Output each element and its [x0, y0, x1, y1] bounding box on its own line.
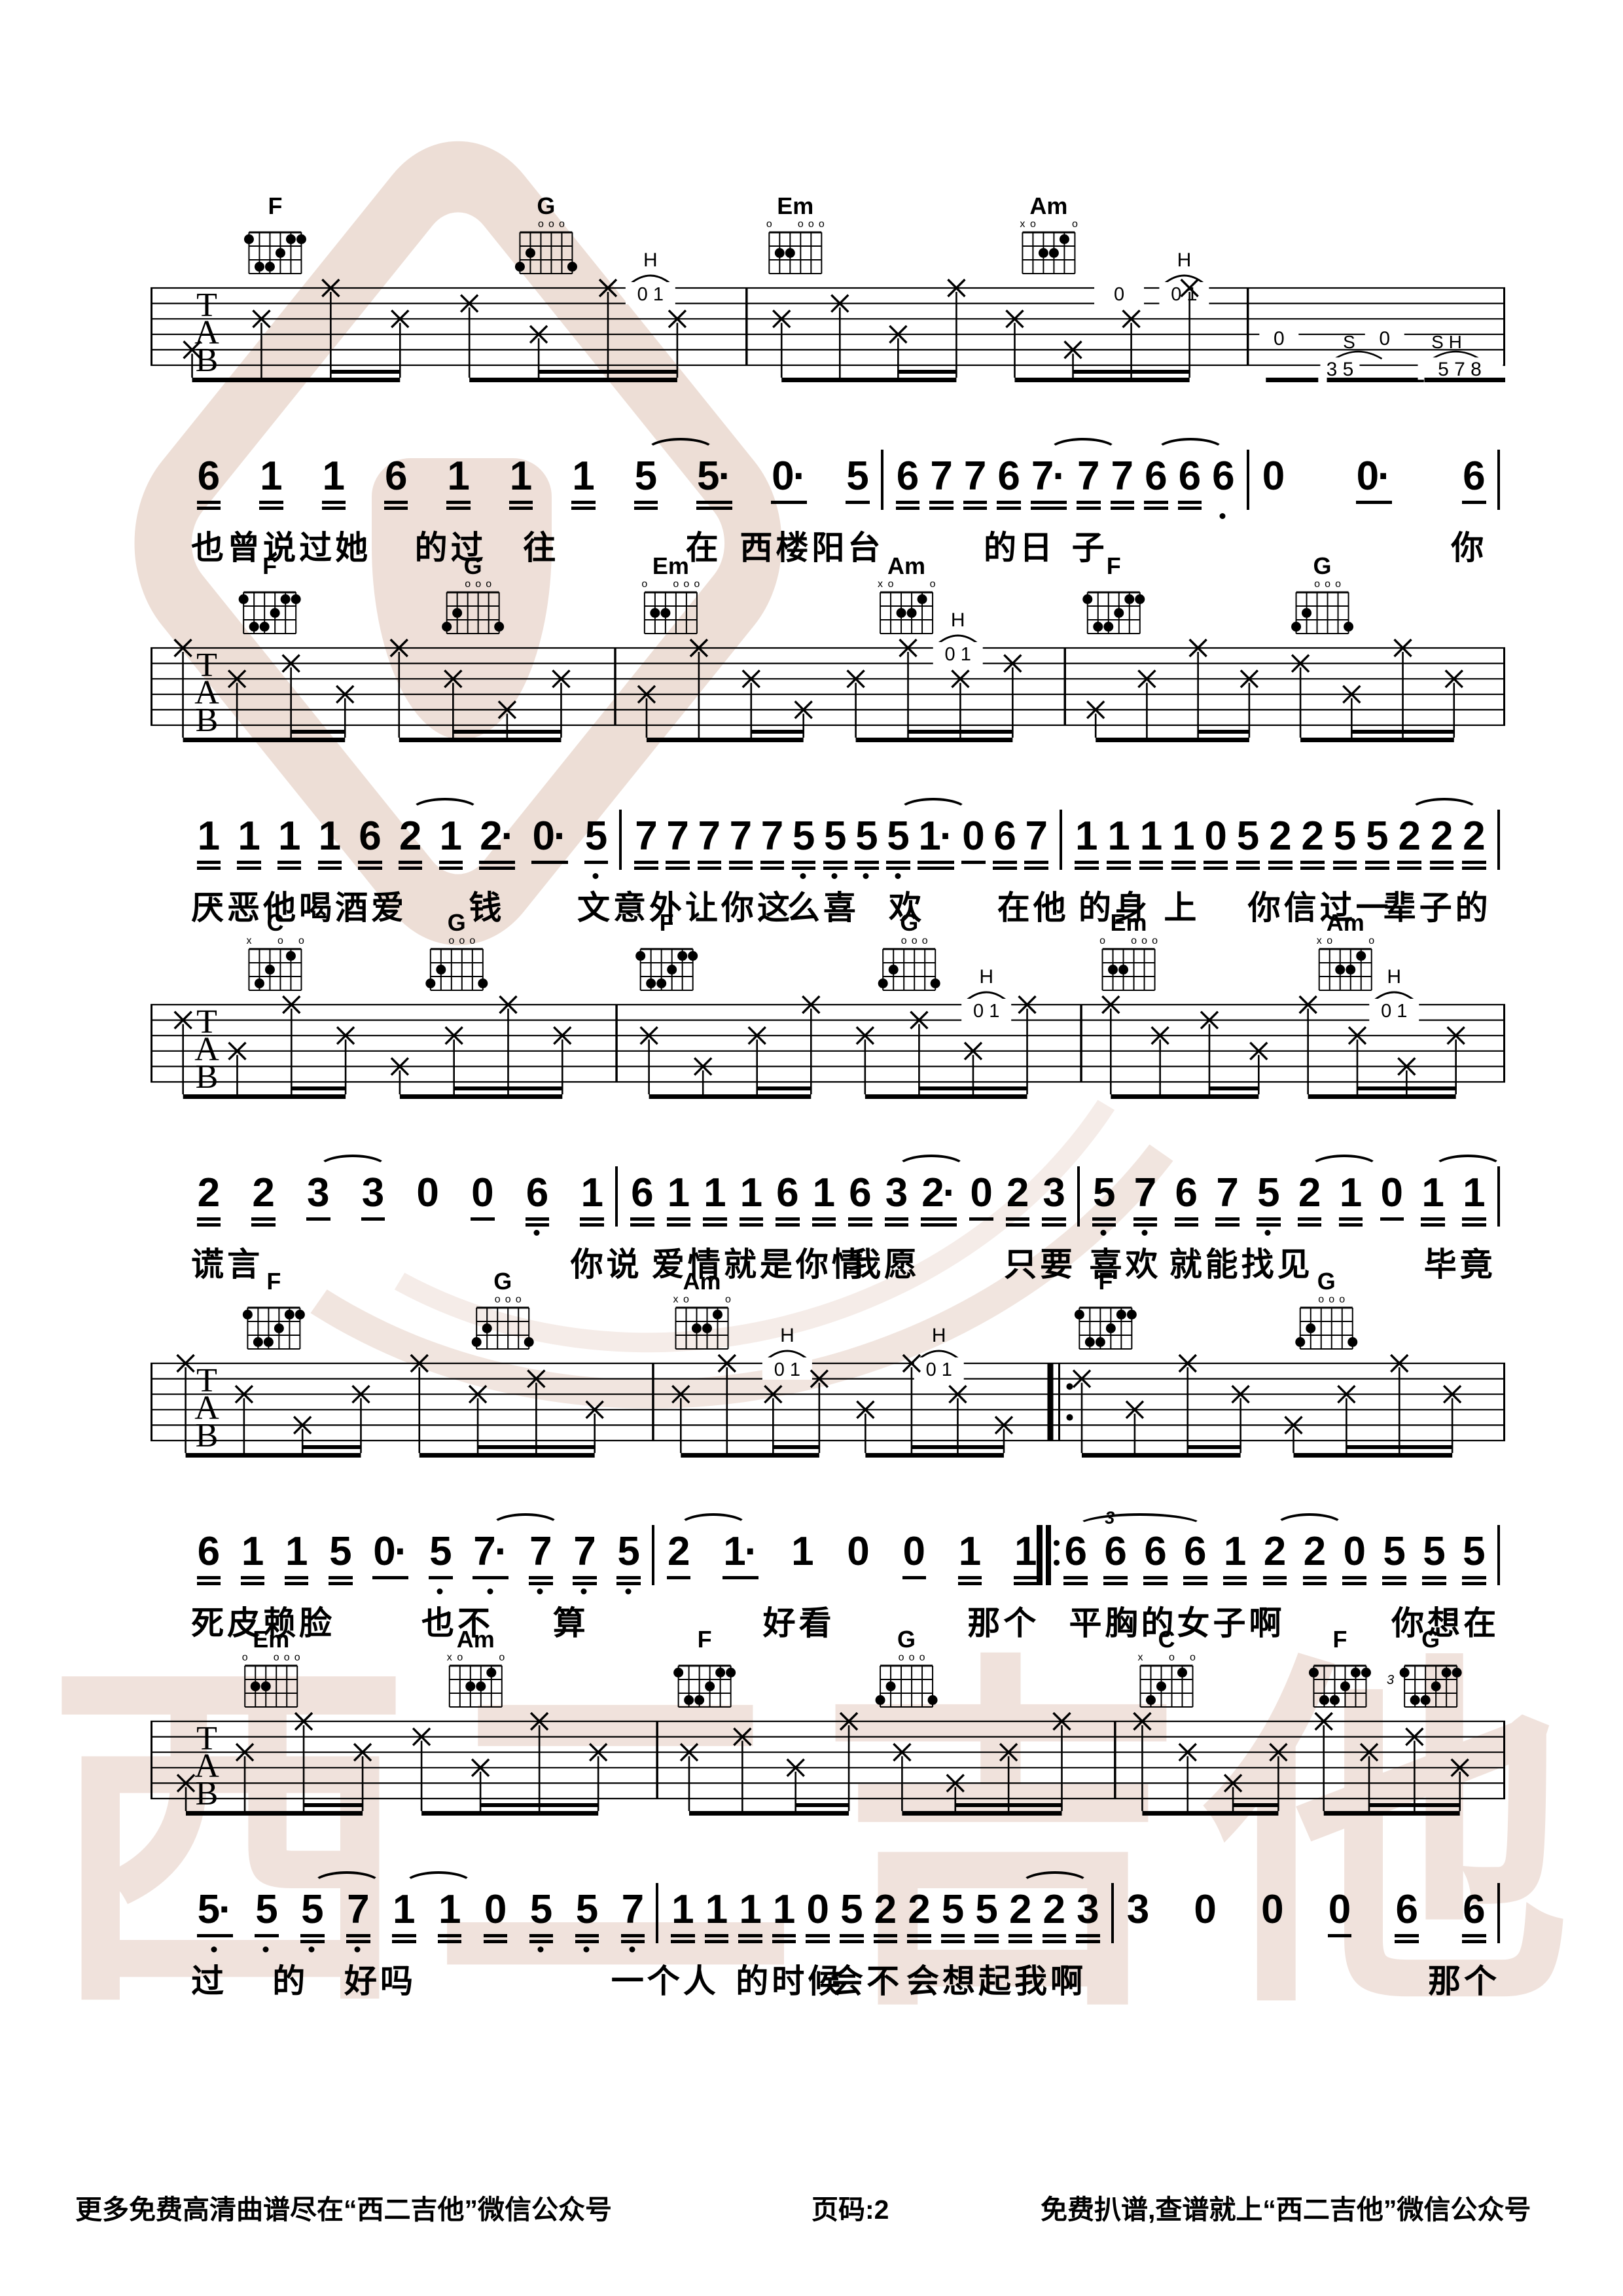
jianpu-note: 1 — [1014, 1530, 1035, 1573]
lyrics-text: 过 — [191, 1955, 227, 2002]
svg-text:o: o — [505, 1294, 511, 1305]
melody-measure: 300066 — [1127, 1888, 1484, 1931]
tab-staff: TABFGoooEmooooAmxooH0 10H0 10S3 50S H5 7… — [151, 147, 1505, 422]
melody-measure: 22330061 — [198, 1172, 602, 1215]
melody-measure: 611161632·023 — [631, 1172, 1064, 1215]
low-octave-dot — [629, 1946, 635, 1952]
jianpu-note: 5· — [697, 455, 730, 498]
svg-text:o: o — [888, 579, 894, 590]
footer-right-text: 免费扒谱,查谱就上“西二吉他”微信公众号 — [1041, 2187, 1531, 2227]
lyrics-text: 会想起我啊 — [906, 1955, 1086, 2002]
jianpu-note: 7 — [1025, 815, 1046, 858]
jianpu-note: 1 — [260, 455, 281, 498]
jianpu-note: 2 — [1463, 815, 1484, 858]
jianpu-note: 7 — [347, 1888, 368, 1931]
melody-measure: 11116212·0·5 — [198, 815, 607, 858]
jianpu-note: 0 — [970, 1172, 991, 1215]
jianpu-note: 1 — [1421, 1172, 1442, 1215]
svg-text:o: o — [277, 935, 283, 946]
melody-measure: 636661220555 — [1064, 1530, 1484, 1573]
jianpu-note: 1 — [580, 1172, 601, 1215]
svg-text:o: o — [457, 1652, 463, 1663]
svg-text:B: B — [196, 1058, 219, 1096]
melody-barline — [1497, 450, 1500, 510]
jianpu-note: 1 — [447, 455, 468, 498]
jianpu-note: 0· — [532, 815, 565, 858]
svg-text:o: o — [448, 935, 454, 946]
jianpu-note: 3 — [885, 1172, 906, 1215]
jianpu-note: 0 — [1329, 1888, 1349, 1931]
svg-text:o: o — [683, 1294, 689, 1305]
jianpu-note: 0· — [772, 455, 805, 498]
jianpu-note: 3 — [1043, 1172, 1063, 1215]
jianpu-note: 6 — [359, 815, 380, 858]
svg-text:o: o — [683, 579, 689, 590]
svg-text:o: o — [516, 1294, 522, 1305]
svg-text:0 1: 0 1 — [973, 1001, 999, 1022]
jianpu-note: 6 — [1179, 455, 1200, 498]
svg-text:G: G — [448, 909, 466, 936]
svg-text:S H: S H — [1431, 332, 1462, 352]
jianpu-note: 5 — [429, 1530, 450, 1573]
low-octave-dot — [538, 1946, 544, 1952]
jianpu-note: 3 — [362, 1172, 383, 1215]
low-octave-dot — [309, 1946, 315, 1952]
svg-text:0 1: 0 1 — [945, 644, 971, 665]
jianpu-note: 6 — [1212, 455, 1233, 498]
jianpu-note: 1 — [440, 815, 461, 858]
svg-text:0: 0 — [1379, 328, 1390, 350]
svg-text:o: o — [1169, 1652, 1175, 1663]
svg-text:o: o — [1318, 1294, 1324, 1305]
svg-text:o: o — [766, 219, 772, 230]
jianpu-note: 3 — [307, 1172, 328, 1215]
svg-text:o: o — [294, 1652, 300, 1663]
lyrics-text: 会不 — [830, 1955, 902, 2002]
jianpu-note: 5 — [1334, 815, 1355, 858]
svg-text:G: G — [900, 909, 918, 936]
jianpu-note: 7 — [930, 455, 951, 498]
svg-text:G: G — [537, 192, 555, 219]
jianpu-note: 6 — [1463, 1888, 1484, 1931]
jianpu-note: 0 — [1262, 455, 1283, 498]
melody-barline — [1497, 1166, 1500, 1227]
svg-text:F: F — [1332, 1626, 1347, 1653]
jianpu-note: 5 — [617, 1530, 638, 1573]
low-octave-dot — [211, 1946, 217, 1952]
jianpu-note: 0· — [373, 1530, 406, 1573]
jianpu-note: 6 — [1145, 455, 1166, 498]
svg-text:o: o — [909, 1652, 915, 1663]
jianpu-note: 1 — [1140, 815, 1161, 858]
svg-text:C: C — [266, 909, 283, 936]
svg-text:F: F — [1098, 1268, 1113, 1295]
svg-text:B: B — [196, 342, 219, 379]
svg-text:x: x — [1020, 219, 1025, 230]
svg-text:x: x — [673, 1294, 678, 1305]
jianpu-note: 2 — [198, 1172, 219, 1215]
melody-measure: 61150·57·775 — [198, 1530, 639, 1573]
svg-text:G: G — [1313, 552, 1332, 579]
svg-text:o: o — [1325, 579, 1330, 590]
jianpu-note: 7 — [1216, 1172, 1237, 1215]
jianpu-note: 5 — [329, 1530, 350, 1573]
jianpu-note: 1 — [198, 815, 219, 858]
svg-text:o: o — [1030, 219, 1036, 230]
lyrics-text: 的时候 — [736, 1955, 844, 2002]
jianpu-note: 2 — [874, 1888, 895, 1931]
jianpu-note: 7· — [473, 1530, 507, 1573]
jianpu-note: 2 — [908, 1888, 929, 1931]
jianpu-note: 0 — [471, 1172, 492, 1215]
svg-text:G: G — [493, 1268, 512, 1295]
svg-text:o: o — [1190, 1652, 1196, 1663]
svg-text:Em: Em — [1111, 909, 1147, 936]
svg-text:G: G — [464, 552, 482, 579]
jianpu-note: 1 — [319, 815, 340, 858]
svg-text:F: F — [1107, 552, 1121, 579]
svg-text:Em: Em — [652, 552, 689, 579]
jianpu-note: 5 — [576, 1888, 597, 1931]
svg-text:o: o — [486, 579, 491, 590]
jianpu-note: 3 — [1077, 1888, 1097, 1931]
jianpu-note: 0 — [962, 815, 983, 858]
jianpu-note: 7 — [635, 815, 656, 858]
melody-measure: 5·557110557 — [198, 1888, 643, 1931]
jianpu-note: 2 — [1304, 1530, 1325, 1573]
jianpu-note: 5 — [793, 815, 813, 858]
jianpu-note: 5 — [301, 1888, 322, 1931]
svg-text:x: x — [1138, 1652, 1143, 1663]
svg-text:o: o — [912, 935, 918, 946]
jianpu-note: 5 — [1463, 1530, 1484, 1573]
svg-text:o: o — [1072, 219, 1078, 230]
jianpu-note: 5 — [1237, 815, 1258, 858]
svg-text:Em: Em — [253, 1626, 289, 1653]
svg-text:Am: Am — [1327, 909, 1364, 936]
jianpu-note: 1· — [918, 815, 952, 858]
jianpu-note: 7 — [730, 815, 751, 858]
jianpu-note: 1 — [323, 455, 344, 498]
jianpu-note: 5 — [824, 815, 845, 858]
melody-barline — [656, 1883, 658, 1943]
jianpu-note: 0 — [1204, 815, 1225, 858]
svg-text:3: 3 — [1387, 1673, 1394, 1687]
svg-text:H: H — [979, 966, 993, 988]
svg-text:Am: Am — [457, 1626, 495, 1653]
jianpu-note: 1 — [238, 815, 259, 858]
jianpu-note: 2 — [1398, 815, 1419, 858]
svg-text:G: G — [897, 1626, 916, 1653]
tab-staff: TABFGoooAmxooFGoooH0 1H0 1 — [151, 1223, 1505, 1498]
jianpu-note: 6 — [1104, 1530, 1125, 1573]
jianpu-note: 1 — [773, 1888, 794, 1931]
jianpu-note: 1 — [1172, 815, 1193, 858]
svg-text:0: 0 — [1114, 284, 1124, 305]
jianpu-note: 0 — [847, 1530, 868, 1573]
jianpu-note: 1 — [1463, 1172, 1484, 1215]
jianpu-note: 2· — [921, 1172, 955, 1215]
svg-text:F: F — [268, 192, 282, 219]
svg-text:o: o — [1131, 935, 1137, 946]
jianpu-note: 2 — [1269, 815, 1290, 858]
jianpu-note: 1 — [1340, 1172, 1361, 1215]
jianpu-note: 0 — [416, 1172, 437, 1215]
svg-text:o: o — [673, 579, 679, 590]
jianpu-note: 1 — [510, 455, 531, 498]
melody-measure: 00·6 — [1262, 455, 1484, 498]
svg-text:F: F — [660, 909, 674, 936]
svg-text:o: o — [1152, 935, 1158, 946]
svg-text:o: o — [242, 1652, 248, 1663]
footer-page-number: 页码:2 — [811, 2187, 889, 2227]
svg-text:o: o — [284, 1652, 290, 1663]
melody-barline — [881, 450, 883, 510]
jianpu-note: 1 — [740, 1172, 761, 1215]
jianpu-note: 7 — [573, 1530, 594, 1573]
svg-text:o: o — [798, 219, 804, 230]
jianpu-note: 2 — [1043, 1888, 1064, 1931]
jianpu-note: 63 — [1064, 1530, 1085, 1573]
jianpu-note: 5 — [635, 455, 656, 498]
svg-text:o: o — [1314, 579, 1320, 590]
low-octave-dot — [355, 1946, 361, 1952]
svg-text:o: o — [694, 579, 700, 590]
melody-measure: 67767·77666 — [897, 455, 1234, 498]
svg-text:B: B — [196, 1775, 219, 1812]
jianpu-note: 0 — [1381, 1172, 1402, 1215]
jianpu-note: 6 — [198, 455, 219, 498]
jianpu-note: 0 — [1261, 1888, 1282, 1931]
sheet-page: 西二吉他 TABFGoooEmooooAmxooH0 10H0 10S3 50S… — [0, 0, 1623, 2296]
melody-barline — [1497, 1525, 1500, 1585]
lyrics-text: 好吗 — [344, 1955, 416, 2002]
jianpu-note: 5 — [255, 1888, 276, 1931]
svg-text:Em: Em — [777, 192, 813, 219]
jianpu-note: 2 — [1298, 1172, 1319, 1215]
svg-text:Am: Am — [1029, 192, 1067, 219]
svg-text:o: o — [1329, 1294, 1334, 1305]
melody-barline — [1077, 1166, 1080, 1227]
jianpu-note: 5 — [840, 1888, 861, 1931]
low-octave-dot — [583, 1946, 589, 1952]
svg-text:o: o — [298, 935, 304, 946]
jianpu-note: 7 — [622, 1888, 643, 1931]
svg-text:S: S — [1343, 332, 1355, 352]
jianpu-note: 1· — [723, 1530, 757, 1573]
lyrics-text: 一个人 — [611, 1955, 719, 2002]
jianpu-note: 7 — [666, 815, 687, 858]
jianpu-note: 5 — [942, 1888, 963, 1931]
tab-staff: TABEmooooAmxooFGoooCxooFG3 — [151, 1581, 1505, 1856]
svg-text:o: o — [1335, 579, 1341, 590]
svg-text:o: o — [808, 219, 814, 230]
svg-text:H: H — [780, 1325, 794, 1346]
jianpu-note: 5 — [855, 815, 876, 858]
svg-text:C: C — [1158, 1626, 1175, 1653]
jianpu-note: 1 — [278, 815, 299, 858]
jianpu-note: 6 — [1175, 1172, 1196, 1215]
svg-text:0: 0 — [1274, 328, 1285, 350]
melody-barline — [619, 810, 622, 870]
svg-text:o: o — [475, 579, 481, 590]
svg-text:0 1: 0 1 — [926, 1359, 952, 1380]
jianpu-note: 1 — [791, 1530, 812, 1573]
jianpu-note: 1 — [1224, 1530, 1245, 1573]
jianpu-note: 1 — [572, 455, 593, 498]
svg-text:o: o — [819, 219, 825, 230]
jianpu-note: 1 — [668, 1172, 688, 1215]
jianpu-note: 2 — [1009, 1888, 1030, 1931]
svg-text:o: o — [538, 219, 544, 230]
jianpu-note: 5 — [1257, 1172, 1278, 1215]
svg-text:o: o — [1327, 935, 1332, 946]
lyrics-text: 那个 — [1428, 1955, 1500, 2002]
melody-barline — [1497, 810, 1500, 870]
svg-text:o: o — [499, 1652, 505, 1663]
melody-measure: 21·10011 — [668, 1530, 1036, 1573]
jianpu-note: 6 — [997, 455, 1018, 498]
svg-text:o: o — [919, 1652, 925, 1663]
svg-text:o: o — [1099, 935, 1105, 946]
jianpu-note: 1 — [241, 1530, 262, 1573]
svg-text:B: B — [196, 702, 219, 739]
svg-text:x: x — [1317, 935, 1322, 946]
svg-text:0 1: 0 1 — [1381, 1001, 1407, 1022]
jianpu-note: 5 — [585, 815, 606, 858]
svg-text:o: o — [548, 219, 554, 230]
jianpu-note: 7 — [964, 455, 985, 498]
svg-text:o: o — [725, 1294, 731, 1305]
jianpu-note: 1 — [438, 1888, 459, 1931]
jianpu-note: 5 — [887, 815, 908, 858]
svg-text:Am: Am — [683, 1268, 721, 1295]
svg-text:o: o — [459, 935, 465, 946]
tab-staff: TABFGoooEmooooAmxooFGoooH0 1 — [151, 507, 1505, 782]
svg-text:H: H — [932, 1325, 946, 1346]
jianpu-note: 7 — [529, 1530, 550, 1573]
jianpu-note: 5 — [530, 1888, 551, 1931]
svg-text:F: F — [262, 552, 277, 579]
jianpu-note: 1 — [671, 1888, 692, 1931]
jianpu-note: 2 — [399, 815, 420, 858]
svg-text:H: H — [1387, 966, 1401, 988]
jianpu-note: 5· — [198, 1888, 231, 1931]
low-octave-dot — [263, 1946, 269, 1952]
jianpu-note: 5 — [975, 1888, 996, 1931]
page-footer: 更多免费高清曲谱尽在“西二吉他”微信公众号 页码:2 免费扒谱,查谱就上“西二吉… — [0, 2187, 1623, 2227]
jianpu-note: 0· — [1357, 455, 1390, 498]
melody-measure: 5767521011 — [1093, 1172, 1484, 1215]
melody-barline — [652, 1525, 654, 1585]
jianpu-note: 6 — [1463, 455, 1484, 498]
jianpu-note: 1 — [959, 1530, 980, 1573]
svg-text:o: o — [465, 579, 471, 590]
jianpu-note: 7 — [761, 815, 782, 858]
melody-barline — [1111, 1883, 1114, 1943]
jianpu-note: 7 — [698, 815, 719, 858]
melody-barline — [1247, 450, 1249, 510]
tab-staff: TABCxooGoooFGoooEmooooAmxooH0 1H0 1 — [151, 864, 1505, 1139]
melody-barline — [1497, 1883, 1500, 1943]
svg-text:0 1: 0 1 — [774, 1359, 800, 1380]
svg-text:o: o — [1339, 1294, 1345, 1305]
jianpu-note: 7 — [1134, 1172, 1155, 1215]
melody-measure: 7777755551·067 — [635, 815, 1046, 858]
jianpu-note: 6 — [897, 455, 918, 498]
jianpu-note: 6 — [198, 1530, 219, 1573]
jianpu-note: 1 — [1107, 815, 1128, 858]
svg-text:o: o — [899, 1652, 904, 1663]
svg-text:H: H — [643, 249, 658, 271]
svg-text:B: B — [196, 1417, 219, 1454]
jianpu-note: 5 — [1366, 815, 1387, 858]
music-systems: TABFGoooEmooooAmxooH0 10H0 10S3 50S H5 7… — [0, 0, 1623, 2296]
jianpu-note: 5 — [846, 455, 867, 498]
melody-barline — [1048, 1525, 1051, 1585]
svg-text:o: o — [559, 219, 565, 230]
jianpu-note: 2 — [252, 1172, 273, 1215]
jianpu-note: 7 — [1077, 455, 1098, 498]
jianpu-note: 2 — [1264, 1530, 1285, 1573]
jianpu-note: 6 — [993, 815, 1014, 858]
jianpu-note: 6 — [1184, 1530, 1205, 1573]
jianpu-note: 1 — [705, 1888, 726, 1931]
jianpu-note: 0 — [903, 1530, 924, 1573]
system-5: TABEmooooAmxooFGoooCxooFG35·557110557111… — [151, 1581, 1505, 2026]
svg-text:G: G — [1421, 1626, 1440, 1653]
jianpu-note: 5 — [1423, 1530, 1444, 1573]
svg-text:o: o — [901, 935, 907, 946]
jianpu-note: 2 — [668, 1530, 688, 1573]
jianpu-note: 0 — [484, 1888, 505, 1931]
svg-text:H: H — [951, 609, 965, 631]
svg-text:H: H — [1177, 249, 1192, 271]
svg-text:5 7 8: 5 7 8 — [1438, 359, 1482, 380]
melody-measure: 1111052255222 — [1075, 815, 1484, 858]
svg-text:x: x — [447, 1652, 452, 1663]
svg-text:x: x — [246, 935, 251, 946]
jianpu-note: 6 — [385, 455, 406, 498]
jianpu-note: 7 — [1111, 455, 1132, 498]
jianpu-note: 2· — [480, 815, 513, 858]
svg-text:o: o — [469, 935, 475, 946]
svg-text:0 1: 0 1 — [637, 284, 664, 305]
jianpu-note: 0 — [806, 1888, 827, 1931]
melody-measure: 1111052255223 — [671, 1888, 1098, 1931]
jianpu-note: 5 — [1383, 1530, 1404, 1573]
footer-left-text: 更多免费高清曲谱尽在“西二吉他”微信公众号 — [75, 2187, 612, 2227]
jianpu-note: 1 — [813, 1172, 834, 1215]
melody-measure: 611611155·0·5 — [198, 455, 868, 498]
jianpu-note: 3 — [1127, 1888, 1148, 1931]
svg-text:o: o — [1141, 935, 1147, 946]
jianpu-note: 0 — [1343, 1530, 1364, 1573]
jianpu-note: 6 — [1395, 1888, 1416, 1931]
jianpu-note: 0 — [1194, 1888, 1215, 1931]
svg-text:o: o — [641, 579, 647, 590]
jianpu-note: 1 — [393, 1888, 414, 1931]
svg-text:F: F — [698, 1626, 712, 1653]
jianpu-note: 1 — [1075, 815, 1096, 858]
jianpu-note: 2 — [1301, 815, 1322, 858]
svg-text:o: o — [274, 1652, 279, 1663]
svg-text:G: G — [1317, 1268, 1336, 1295]
svg-text:o: o — [930, 579, 936, 590]
melody-barline — [615, 1166, 618, 1227]
jianpu-note: 1 — [285, 1530, 306, 1573]
svg-text:x: x — [878, 579, 883, 590]
